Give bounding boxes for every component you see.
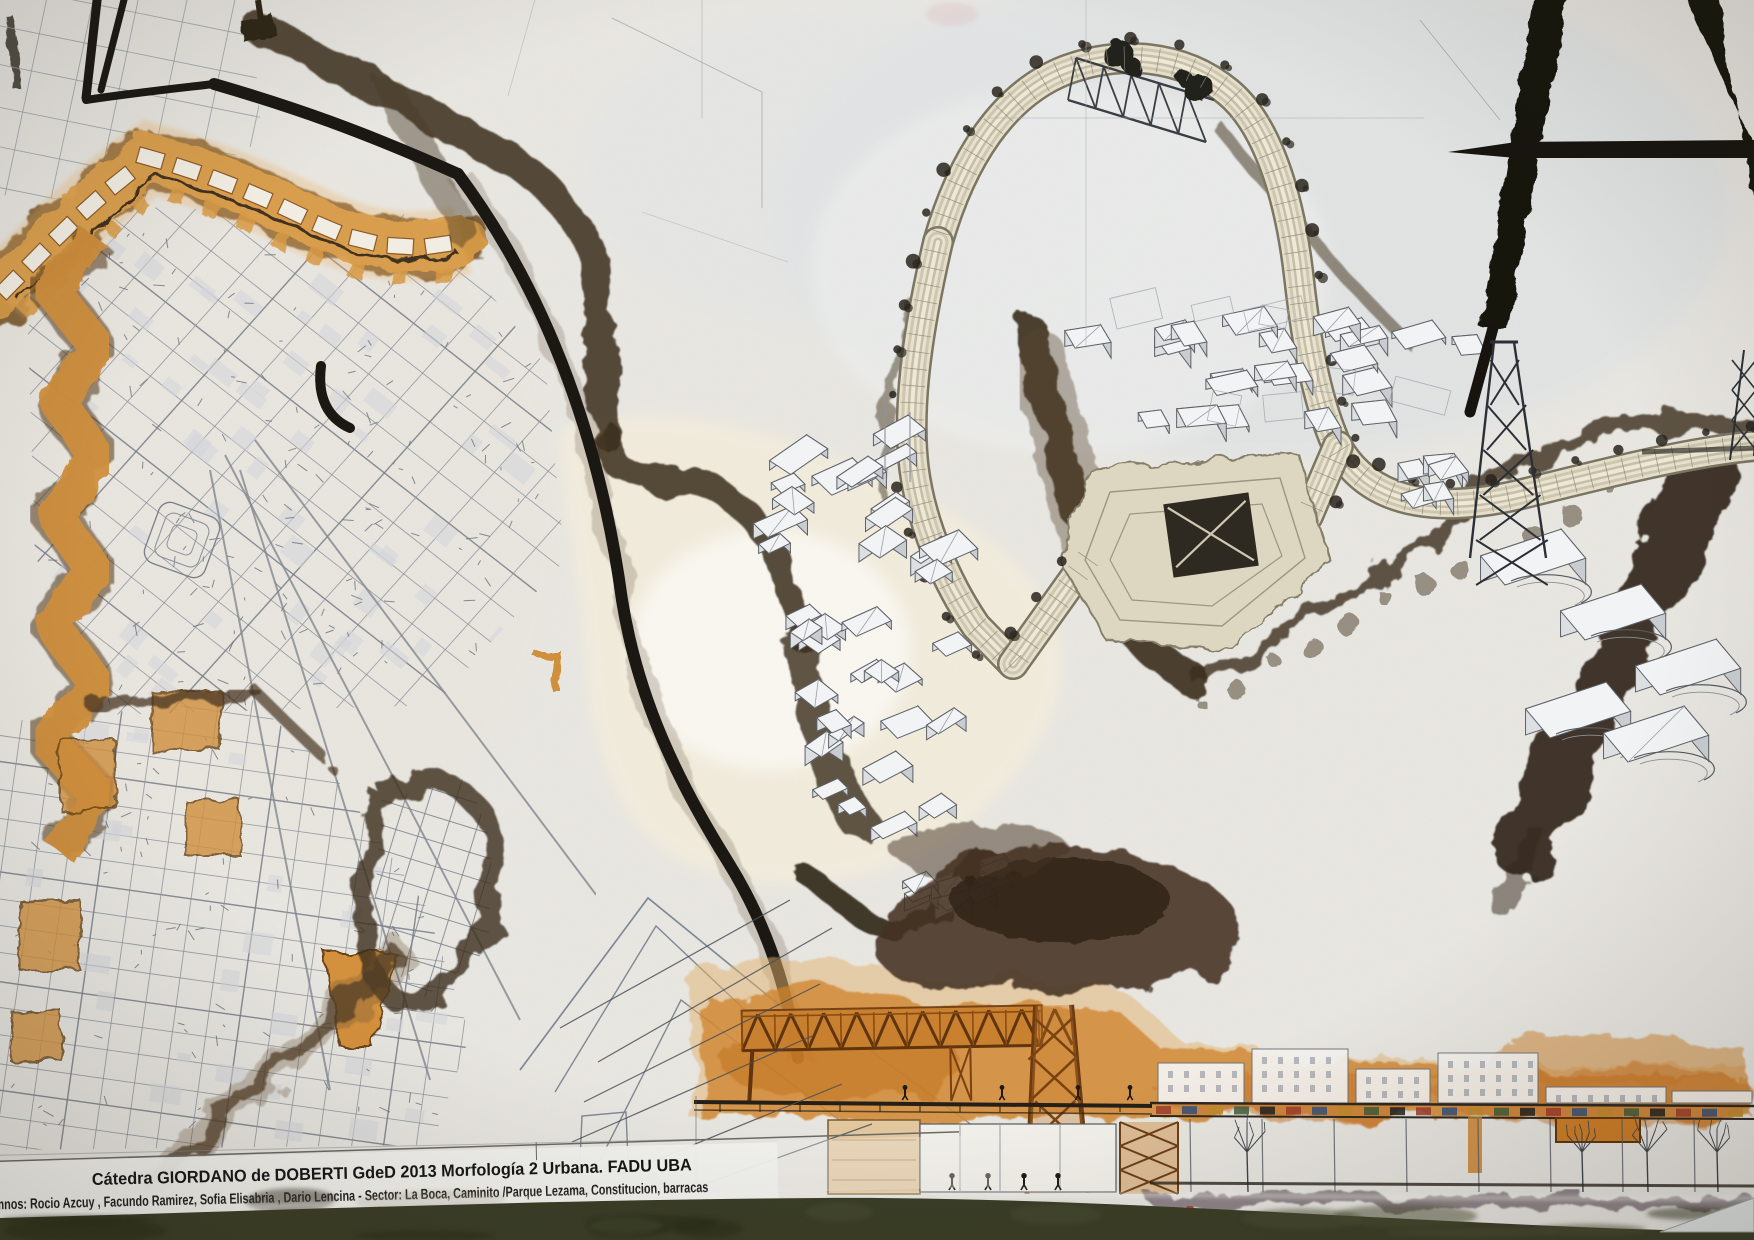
photo-vignette (0, 0, 1754, 1240)
drawing-canvas: Cátedra GIORDANO de DOBERTI GdeD 2013 Mo… (0, 0, 1754, 1240)
photo-of-hand-drawn-urban-plan: Cátedra GIORDANO de DOBERTI GdeD 2013 Mo… (0, 0, 1754, 1240)
